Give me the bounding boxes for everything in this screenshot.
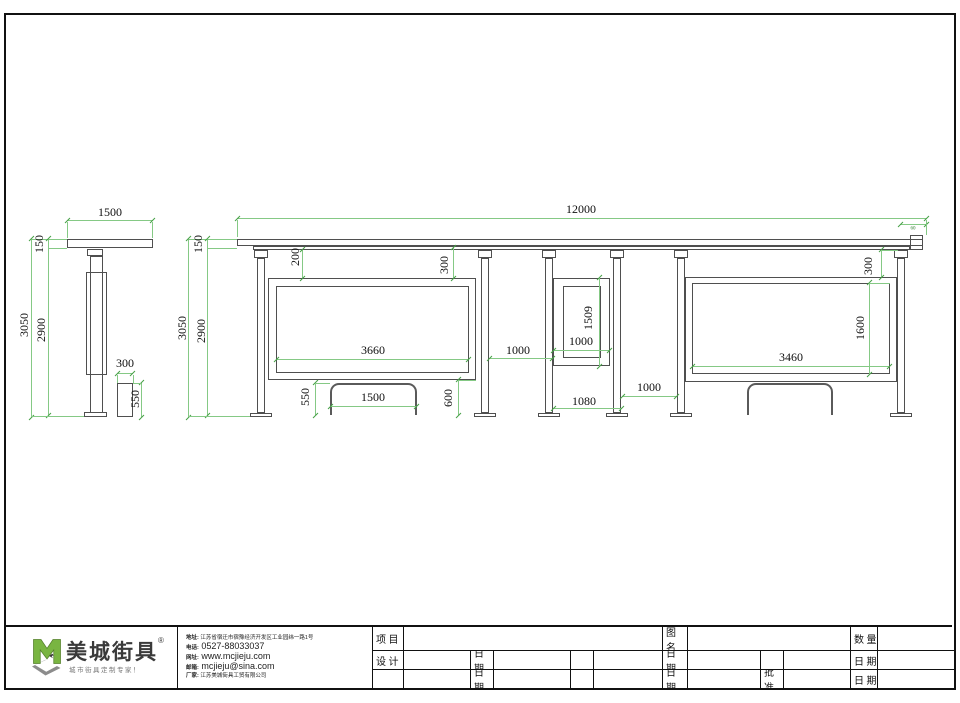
dim-label: 3050 xyxy=(18,313,30,337)
brand-name: 美城街具® xyxy=(66,636,166,666)
empty-cell xyxy=(372,670,403,688)
field-date-value xyxy=(877,670,955,688)
dim-label: 12000 xyxy=(566,203,596,215)
dim-line-12000 xyxy=(237,218,927,219)
field-drawing-name-value xyxy=(687,627,850,651)
dim-label: 3050 xyxy=(176,316,188,340)
field-drawing-name-label: 图 名 xyxy=(662,627,687,651)
dim-label: 550 xyxy=(129,390,141,408)
dim-line-3460 xyxy=(692,366,890,367)
dim-label: 200 xyxy=(289,248,301,266)
empty-cell xyxy=(783,651,850,670)
post xyxy=(897,258,905,413)
dim-label: 300 xyxy=(862,257,874,275)
dim-label: 2900 xyxy=(35,318,47,342)
dim-label: 550 xyxy=(299,388,311,406)
company-logo-icon xyxy=(29,633,65,679)
contact-block: 地址: 江苏省宿迁市宿豫经济开发区工业园纬一路1号 电话: 0527-88033… xyxy=(186,633,368,679)
dim-label: 1080 xyxy=(572,395,596,407)
dim-label: 150 xyxy=(192,235,204,253)
empty-cell xyxy=(760,651,783,670)
post-bracket xyxy=(254,250,268,258)
dim-line-1509 xyxy=(599,278,600,366)
ext-line xyxy=(48,248,67,249)
post-bracket xyxy=(542,250,556,258)
dim-line-1000-gap1 xyxy=(489,358,553,359)
title-block: 美城街具® 城市街具定制专家！ 地址: 江苏省宿迁市宿豫经济开发区工业园纬一路1… xyxy=(6,625,952,688)
dim-line-roof-end xyxy=(900,224,927,225)
post xyxy=(545,258,553,413)
company-label: 厂家: xyxy=(186,673,199,679)
dim-line-600 xyxy=(458,380,459,415)
dim-line-1080 xyxy=(553,408,622,409)
post xyxy=(481,258,489,413)
phone-value: 0527-88033037 xyxy=(201,641,264,651)
ext-line xyxy=(458,380,476,381)
dim-label: 1600 xyxy=(854,316,866,340)
dim-line-1600 xyxy=(869,283,870,374)
dim-line-200 xyxy=(302,250,303,278)
post-bracket xyxy=(610,250,624,258)
dim-label: 1000 xyxy=(569,335,593,347)
ext-line xyxy=(881,250,898,251)
post-base xyxy=(890,413,912,417)
field-date-label: 日 期 xyxy=(850,670,877,688)
dim-line-1000-panel xyxy=(553,350,610,351)
empty-cell xyxy=(570,651,593,670)
drawing-sheet: 1500 150 3050 2900 300 550 xyxy=(0,0,960,703)
post-base xyxy=(538,413,560,417)
title-block-table: 项 目 图 名 数 量 设 计 日 期 日 期 日 期 日 期 xyxy=(372,627,955,688)
email-value: mcjieju@sina.com xyxy=(201,661,274,671)
empty-cell xyxy=(570,670,593,688)
dim-label: 300 xyxy=(116,357,134,369)
company-value: 江苏美城街具工贸有限公司 xyxy=(200,673,266,679)
post-base xyxy=(474,413,496,417)
side-panel-edge xyxy=(86,272,107,375)
dim-line-550 xyxy=(315,383,316,415)
dim-label: 1000 xyxy=(637,381,661,393)
dim-label: 60 xyxy=(911,227,916,232)
ext-line xyxy=(926,224,927,235)
dim-line-1000-gap2 xyxy=(622,396,677,397)
ext-line xyxy=(133,383,141,384)
field-quantity-label: 数 量 xyxy=(850,627,877,651)
field-date-label: 日 期 xyxy=(850,651,877,670)
dim-label: 1500 xyxy=(361,391,385,403)
empty-cell xyxy=(593,651,662,670)
dim-line-300-left xyxy=(453,248,454,278)
field-approve-label: 批 准 xyxy=(760,670,783,688)
field-project-value xyxy=(403,627,662,651)
field-quantity-value xyxy=(877,627,955,651)
field-date-value xyxy=(493,651,570,670)
dim-label: 3460 xyxy=(779,351,803,363)
dim-label: 1509 xyxy=(582,306,594,330)
field-design-value xyxy=(403,651,470,670)
ext-line xyxy=(869,283,890,284)
field-date-label: 日 期 xyxy=(470,670,493,688)
field-date-value xyxy=(687,670,760,688)
field-design-label: 设 计 xyxy=(372,651,403,670)
post-base xyxy=(250,413,272,417)
field-date-label: 日 期 xyxy=(470,651,493,670)
dim-line-2900 xyxy=(48,239,49,415)
ext-line xyxy=(117,375,118,383)
ext-line xyxy=(31,416,84,417)
divider xyxy=(177,627,178,688)
ext-line xyxy=(315,383,330,384)
brand-tagline: 城市街具定制专家！ xyxy=(69,664,141,674)
dim-line-3050 xyxy=(31,239,32,417)
post xyxy=(677,258,685,413)
front-roof-rail xyxy=(253,246,910,250)
dim-label: 1000 xyxy=(506,344,530,356)
ext-line xyxy=(67,222,68,238)
dim-line-1500 xyxy=(67,220,153,221)
front-roof-endcap xyxy=(910,235,923,250)
field-date-value xyxy=(877,651,955,670)
post-bracket xyxy=(894,250,908,258)
bench-right xyxy=(747,383,833,415)
side-roof-bracket xyxy=(87,249,103,256)
dim-line-1500 xyxy=(330,406,417,407)
post-bracket xyxy=(478,250,492,258)
side-post-base xyxy=(84,412,107,417)
ext-line xyxy=(133,375,134,383)
post xyxy=(257,258,265,413)
dim-label: 2900 xyxy=(195,319,207,343)
post-bracket xyxy=(674,250,688,258)
dim-line-300-right xyxy=(881,250,882,277)
website-value: www.mcjieju.com xyxy=(201,651,270,661)
dim-label: 300 xyxy=(438,256,450,274)
front-roof-slab xyxy=(237,239,923,246)
field-project-label: 项 目 xyxy=(372,627,403,651)
ext-line xyxy=(152,222,153,238)
empty-cell xyxy=(593,670,662,688)
field-date-value xyxy=(687,651,760,670)
field-date-value xyxy=(493,670,570,688)
dim-label: 600 xyxy=(442,389,454,407)
dim-label: 1500 xyxy=(98,206,122,218)
post-base xyxy=(606,413,628,417)
dim-line-300 xyxy=(117,373,133,374)
registered-mark: ® xyxy=(158,636,166,645)
field-approve-value xyxy=(783,670,850,688)
ext-line xyxy=(207,248,237,249)
post xyxy=(613,258,621,413)
ext-line xyxy=(237,220,238,237)
ext-line xyxy=(188,416,250,417)
field-date-label: 日 期 xyxy=(662,651,687,670)
empty-cell xyxy=(403,670,470,688)
dim-line-3660 xyxy=(276,359,469,360)
field-date-label: 日 期 xyxy=(662,670,687,688)
post-base xyxy=(670,413,692,417)
side-roof xyxy=(67,239,153,248)
dim-label: 3660 xyxy=(361,344,385,356)
dim-label: 150 xyxy=(33,235,45,253)
